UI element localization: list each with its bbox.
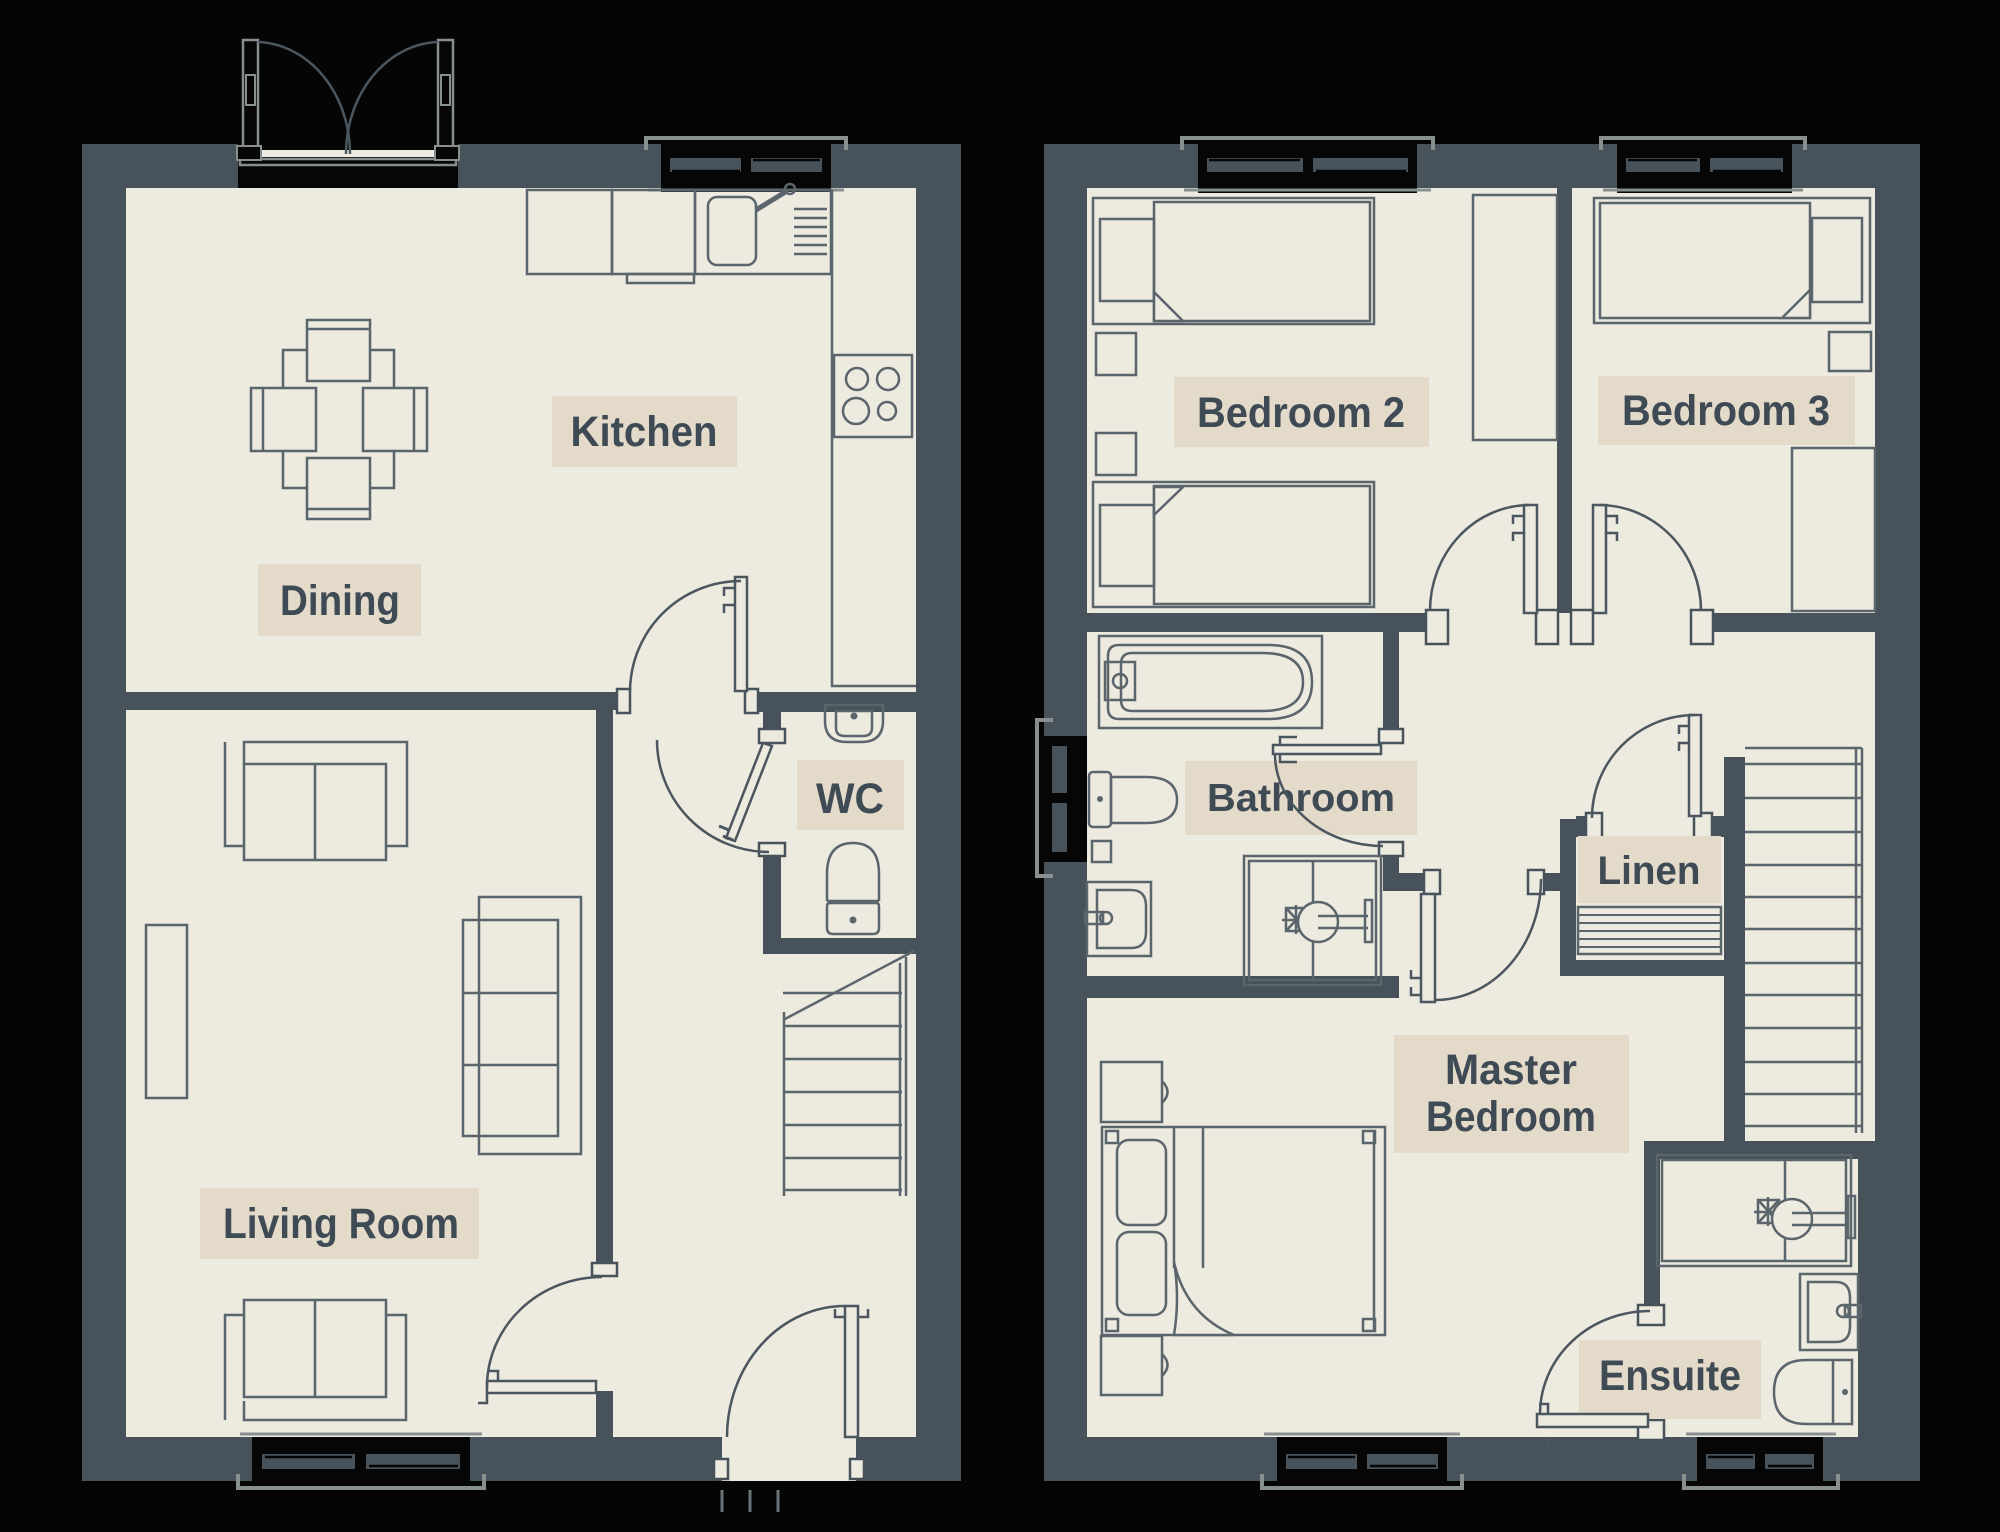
svg-text:Dining: Dining — [280, 577, 400, 625]
svg-text:WC: WC — [816, 775, 884, 823]
svg-text:Bedroom 3: Bedroom 3 — [1622, 387, 1830, 435]
svg-text:Bedroom: Bedroom — [1426, 1093, 1596, 1141]
svg-text:Kitchen: Kitchen — [571, 408, 718, 456]
svg-text:Ensuite: Ensuite — [1599, 1352, 1741, 1400]
svg-text:Linen: Linen — [1598, 849, 1701, 893]
svg-text:Bedroom 2: Bedroom 2 — [1197, 389, 1405, 437]
svg-text:Living Room: Living Room — [223, 1200, 459, 1248]
svg-text:Master: Master — [1445, 1046, 1577, 1094]
